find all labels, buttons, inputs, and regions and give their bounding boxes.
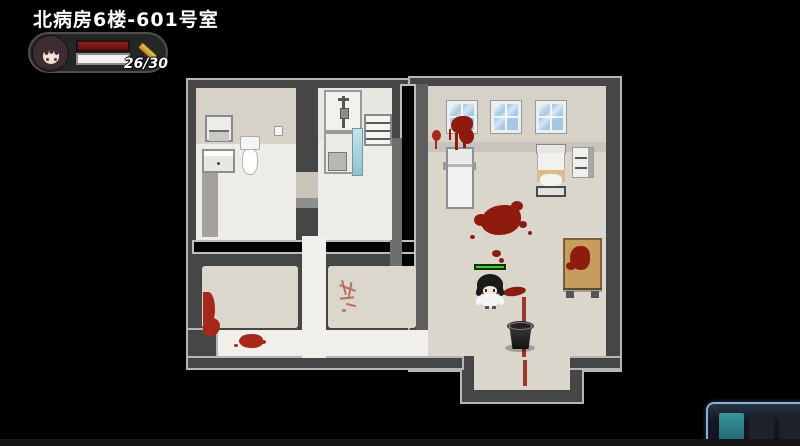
player-hp-bar	[474, 264, 506, 270]
iv-stand-crossbar	[338, 98, 349, 101]
wall-bottom-right-band	[568, 356, 622, 370]
folding-screen-tab-left	[443, 162, 447, 170]
iv-stand-bag	[340, 108, 349, 119]
player-eye-left	[485, 289, 487, 292]
player-character	[474, 264, 506, 310]
location-title: 北病房6楼-601号室	[33, 5, 219, 32]
nightstand-side	[588, 148, 593, 177]
wall-ward-left	[416, 84, 428, 330]
portrait-eye-left	[46, 58, 49, 61]
blood-trail-lower	[523, 360, 527, 386]
folding-screen	[446, 147, 474, 209]
hospital-bed	[536, 144, 566, 194]
window-3	[536, 101, 566, 133]
toilet-tank	[240, 136, 260, 150]
player-hp-fill	[476, 266, 504, 268]
hud-status-pill: 26/30	[28, 32, 168, 73]
folding-screen-top	[448, 149, 472, 163]
player-foot-left	[485, 306, 489, 309]
paper-dispenser	[205, 115, 233, 142]
counter-text: 26/30	[120, 56, 168, 72]
shower-sink	[324, 132, 354, 174]
bed-footrail	[536, 186, 566, 197]
item-slot-empty[interactable]	[749, 413, 774, 440]
portrait-eye-right	[54, 58, 57, 61]
divider-pillar-cap	[296, 198, 318, 208]
item-slot-teal[interactable]	[719, 413, 744, 440]
sink-cabinet-top	[204, 151, 233, 156]
nightstand-drawer2	[575, 167, 587, 169]
folding-screen-bar	[448, 164, 472, 167]
blood-handprint	[337, 280, 367, 314]
player-foot-right	[492, 306, 496, 309]
wall-shelf	[364, 114, 392, 146]
shower-glass	[352, 128, 363, 176]
folding-screen-tab-right	[472, 162, 476, 170]
wall-cup	[274, 126, 283, 136]
window-2	[491, 101, 521, 133]
item-slot-empty[interactable]	[779, 413, 800, 440]
shower-sink-basin	[328, 152, 347, 171]
floor-shading	[202, 173, 218, 237]
player-eye-right	[493, 289, 495, 292]
void-mid-right	[324, 240, 416, 254]
portrait-bang	[54, 46, 59, 55]
wall-bottom-left-band	[186, 356, 464, 370]
paper-dispenser-slot	[209, 130, 229, 141]
ward-exit-floor	[474, 352, 570, 390]
sink-cabinet-handle	[217, 162, 220, 165]
bed-pillow	[540, 174, 562, 186]
game-screen: 北病房6楼-601号室 26/30	[0, 0, 800, 446]
letterbox-strip	[0, 439, 800, 446]
blood-table-splat-2	[566, 262, 576, 270]
table-leg-left	[566, 291, 574, 298]
iv-stand-unit	[324, 90, 362, 132]
sink-cabinet	[202, 149, 235, 173]
divider-pillar	[296, 172, 318, 198]
player-body	[481, 294, 499, 307]
bucket-rim-inner	[510, 323, 531, 329]
health-bar	[76, 40, 130, 52]
nightstand-drawer1	[575, 157, 587, 159]
void-mid-left	[192, 240, 304, 254]
toilet-bowl	[242, 149, 258, 175]
bed-mattress	[537, 153, 565, 170]
table-leg-right	[591, 291, 599, 298]
bucket	[507, 321, 534, 353]
player-portrait	[32, 35, 69, 72]
nightstand-cabinet	[572, 147, 594, 178]
